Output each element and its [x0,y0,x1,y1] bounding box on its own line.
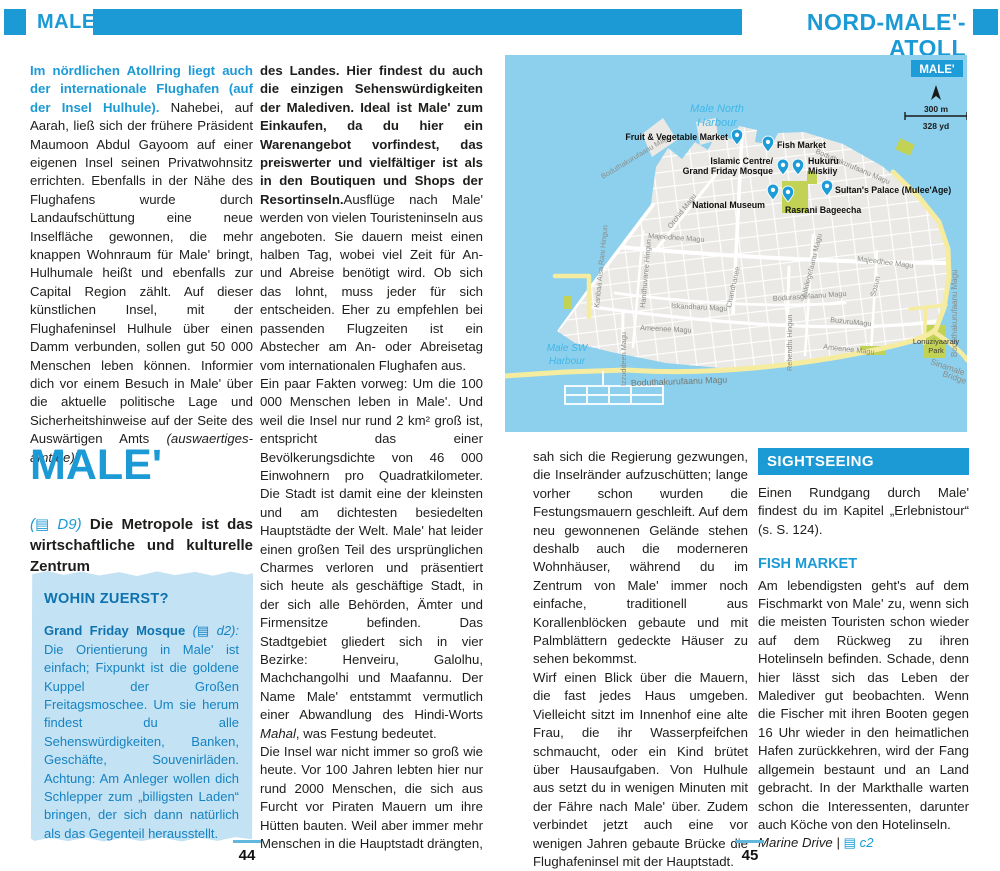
map-ref-d9: (▤ D9) [30,516,90,533]
paragraph-continuation: des Landes. Hier findest du auch die ein… [260,62,483,375]
harbour-label-sw: Harbour [549,356,586,367]
scale-yards: 328 yd [923,121,949,131]
facts-paragraph: Ein paar Fakten vorweg: Um die 100 000 M… [260,375,483,743]
poi-label-fruit-market: Fruit & Vegetable Market [625,132,728,142]
intro-paragraph: Im nördlichen Atollring liegt auch der i… [30,62,253,467]
poi-label-fish-market: Fish Market [777,140,826,150]
poi-label-sultans-palace: Sultan's Palace (Mulee'Age) [835,185,951,195]
header-bar [93,9,742,35]
facts-text: Ein paar Fakten vorweg: Um die 100 000 M… [260,376,483,722]
header-left-tab: MALE' [37,9,101,35]
excursions-text: Ausflüge nach Male' werden von vielen To… [260,192,483,373]
harbour-label-sw: Male SW [547,343,589,354]
poi-label-national-museum: National Museum [692,200,765,210]
poi-label-islamic-centre: Islamic Centre/ [710,156,773,166]
header-chapter-title: NORD-MALE'-ATOLL [748,9,966,61]
reference-separator: | [833,835,844,850]
male-city-map: Boduthakurufaanu Magu Boduthakurufaanu M… [505,55,967,432]
bold-continuation: des Landes. Hier findest du auch die ein… [260,63,483,207]
column-1: Im nördlichen Atollring liegt auch der i… [30,62,253,850]
column-2: des Landes. Hier findest du auch die ein… [260,62,483,852]
reclamation-paragraph: sah sich die Regierung gezwungen, die In… [533,448,748,669]
wohin-box-text: Die Orientierung in Male' ist einfach; F… [44,642,239,841]
harbour-label-north: Harbour [697,117,738,129]
scale-metres: 300 m [924,104,949,114]
sightseeing-intro: Einen Rundgang durch Male' findest du im… [758,484,969,539]
page-number-left: 44 [217,847,277,864]
history-paragraph: Die Insel war nicht immer so groß wie he… [260,743,483,852]
street-label: Rehendhi Hingun [785,315,794,371]
park-label-lonuziyaaraiy: Park [928,346,944,355]
mahal-italic: Mahal [260,726,296,741]
park-label-lonuziyaaraiy: Lonuziyaaraiy [913,337,960,346]
wohin-box-title: WOHIN ZUERST? [44,590,239,608]
page-number-right: 45 [720,847,780,864]
map-title: MALE' [919,64,955,76]
section-subtitle: (▤ D9) Die Metropole ist das wirtschaftl… [30,514,253,577]
facts-end: , was Festung bedeutet. [296,726,437,741]
grand-friday-mosque-lead: Grand Friday Mosque [44,623,193,638]
poi-label-hukuru: Miskiiy [808,166,837,176]
intro-lead-rest: Nahebei, auf Aarah, ließ sich der früher… [30,100,253,446]
header-right-square [973,9,998,35]
section-heading-male: MALE' [30,456,162,474]
sightseeing-section-header: SIGHTSEEING [758,448,969,475]
poi-label-islamic-centre: Grand Friday Mosque [683,166,774,176]
harbour-label-north: Male North [690,103,744,115]
street-label: Izzuddeen Magu [619,332,628,386]
wohin-box-body: Grand Friday Mosque (▤ d2): Die Orientie… [44,622,239,843]
wohin-zuerst-box: WOHIN ZUERST? Grand Friday Mosque (▤ d2)… [30,570,253,842]
map-ref-d2: (▤ d2): [193,623,239,638]
fish-market-heading: FISH MARKET [758,555,969,573]
page-number-rule-left [233,840,261,843]
column-3: sah sich die Regierung gezwungen, die In… [533,448,748,871]
column-4: SIGHTSEEING Einen Rundgang durch Male' f… [758,448,969,853]
walls-paragraph: Wirf einen Blick über die Mauern, die fa… [533,669,748,871]
fish-market-reference: Marine Drive | ▤ c2 [758,834,969,852]
poi-label-hukuru: Hukuru [808,156,839,166]
page-number-rule-right [736,840,764,843]
poi-label-rasrani-bageecha: Rasrani Bageecha [785,205,861,215]
map-ref-c2: ▤ c2 [844,835,874,850]
fish-market-paragraph: Am lebendigsten geht's auf dem Fischmark… [758,577,969,835]
header-left-square [4,9,26,35]
guidebook-spread: MALE' NORD-MALE'-ATOLL Im nördlichen Ato… [0,0,1000,871]
